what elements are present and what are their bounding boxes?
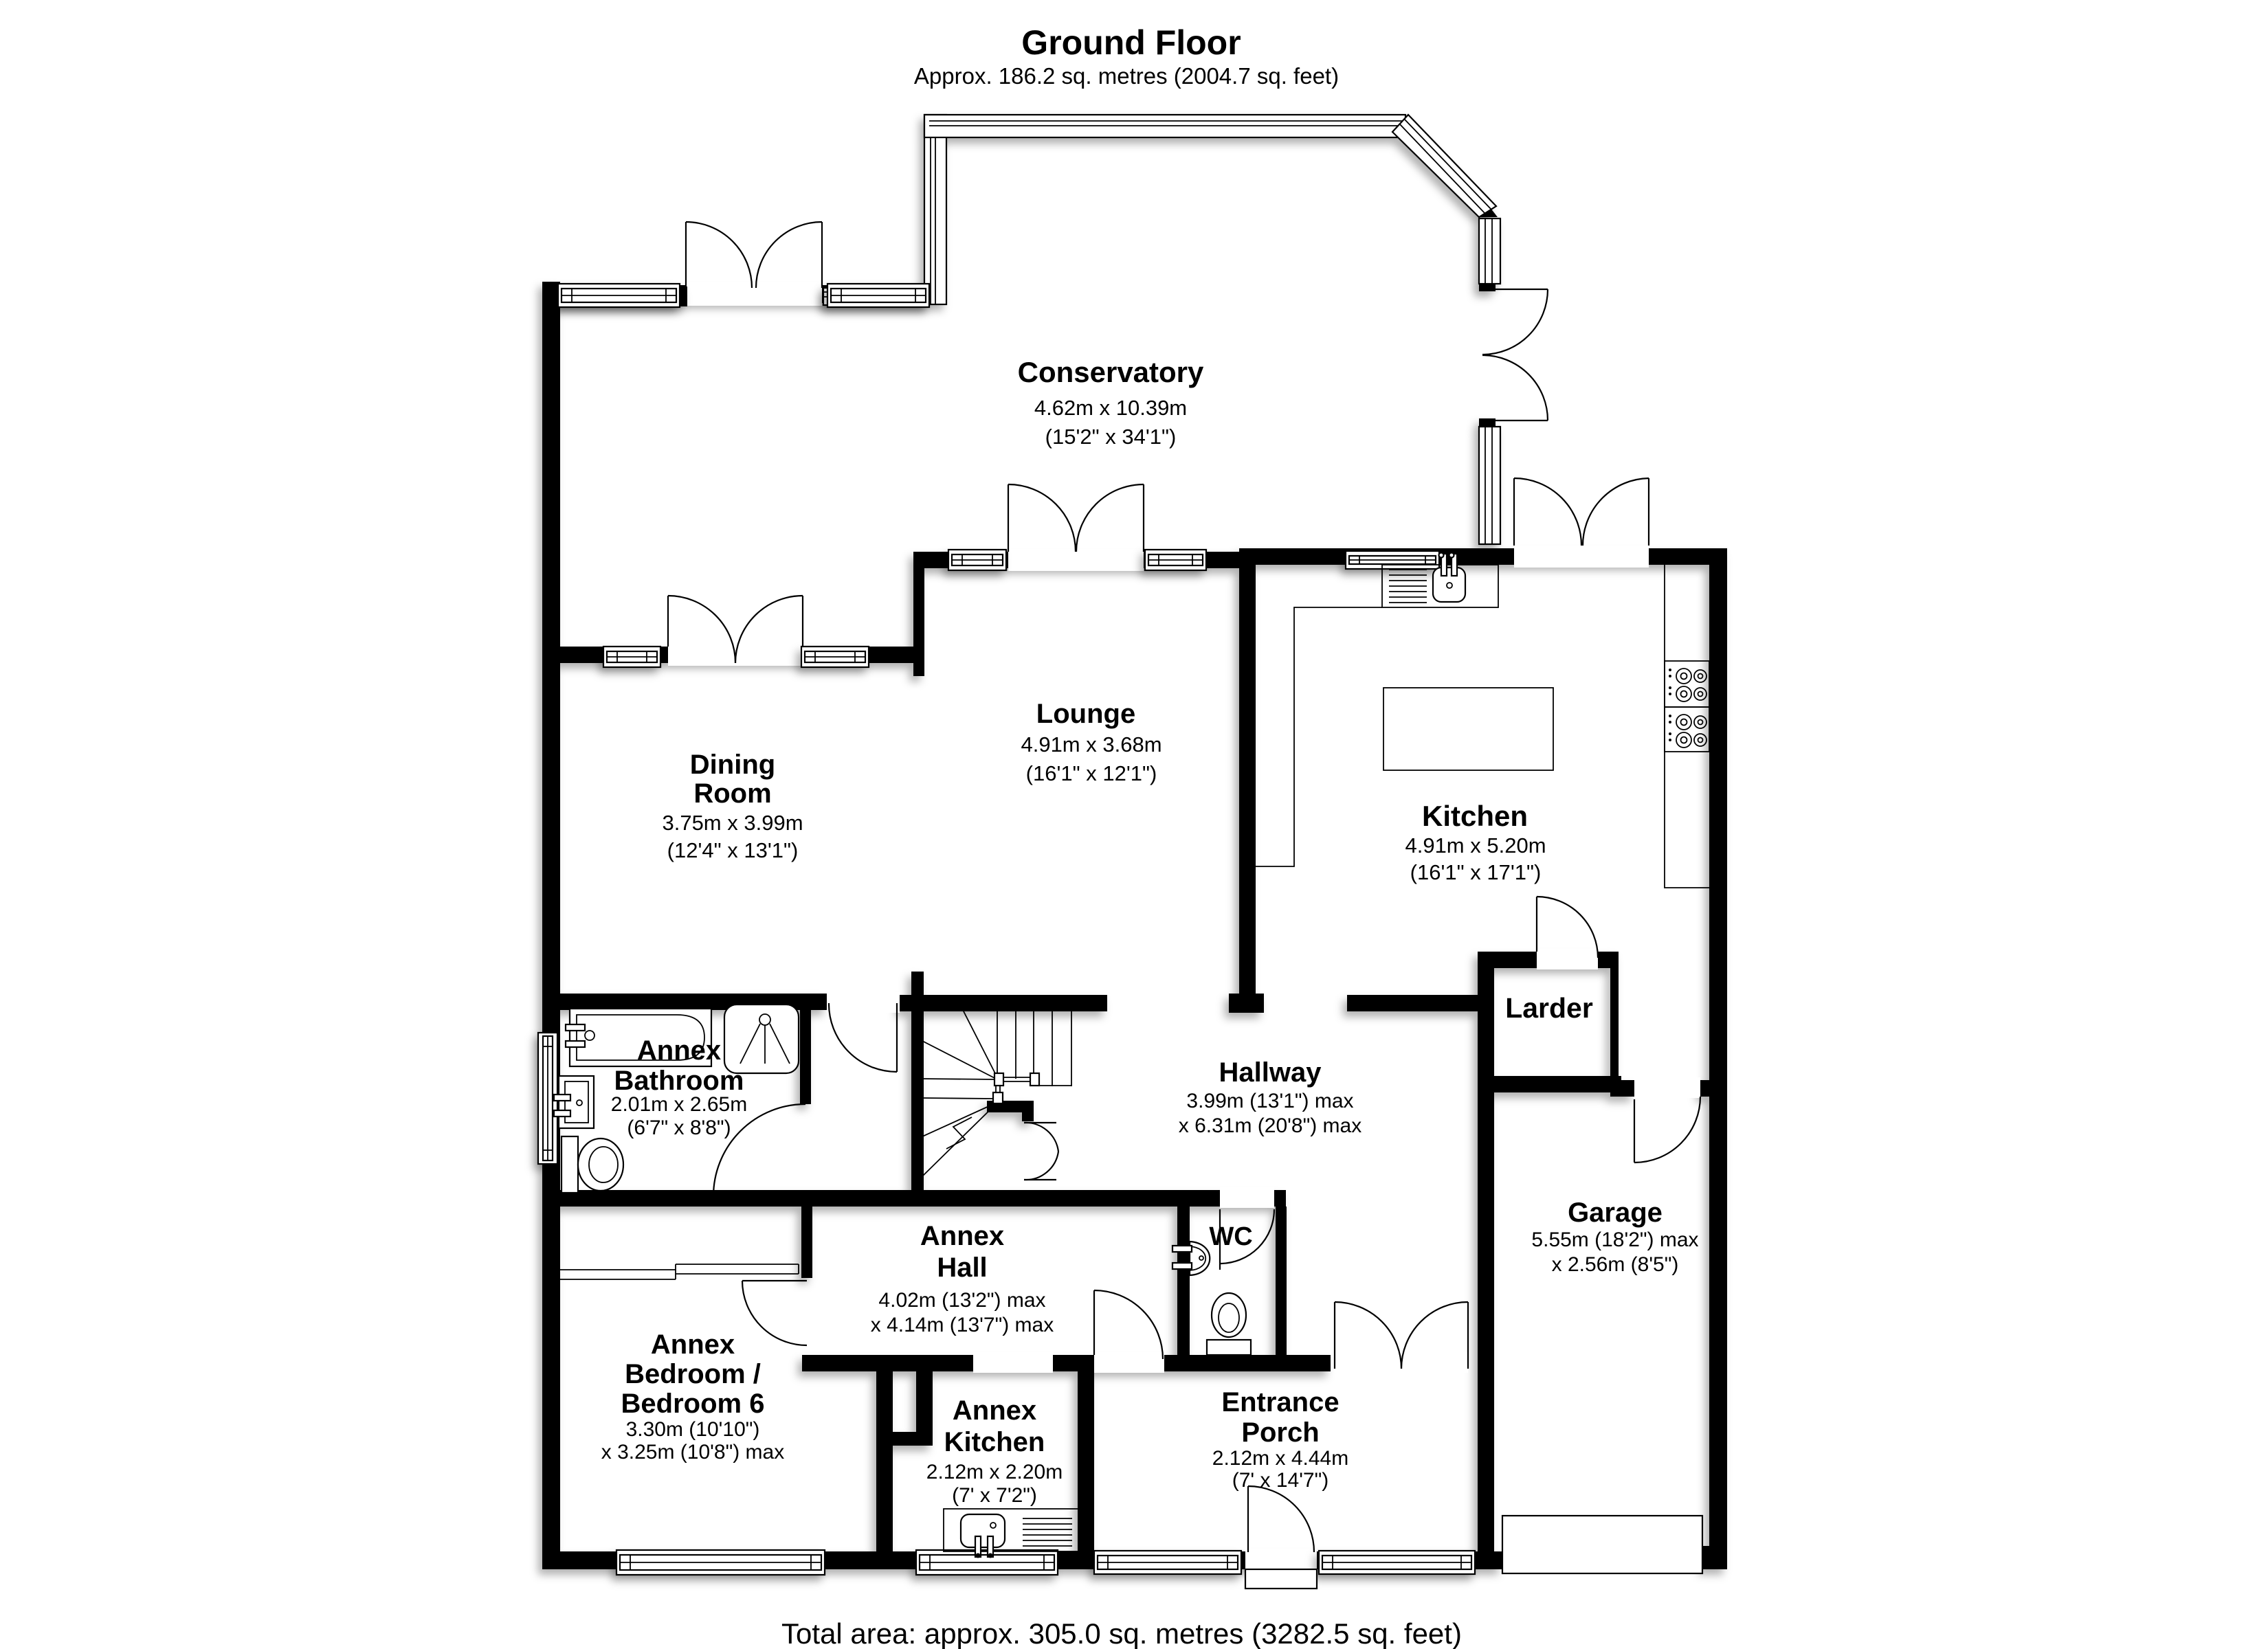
svg-text:Bedroom 6: Bedroom 6	[621, 1389, 765, 1419]
svg-text:5.55m (18'2") max: 5.55m (18'2") max	[1531, 1229, 1698, 1251]
svg-text:(7' x 7'2"): (7' x 7'2")	[952, 1484, 1037, 1507]
svg-text:(16'1" x 17'1"): (16'1" x 17'1")	[1410, 860, 1542, 884]
svg-text:Approx. 186.2 sq. metres (2004: Approx. 186.2 sq. metres (2004.7 sq. fee…	[914, 63, 1339, 89]
svg-text:(16'1" x 12'1"): (16'1" x 12'1")	[1026, 761, 1157, 785]
svg-text:Annex: Annex	[651, 1330, 735, 1360]
svg-text:Kitchen: Kitchen	[944, 1427, 1045, 1457]
svg-text:Garage: Garage	[1568, 1198, 1663, 1228]
svg-text:Total area: approx. 305.0 sq.: Total area: approx. 305.0 sq. metres (32…	[781, 1617, 1462, 1649]
svg-text:(15'2" x 34'1"): (15'2" x 34'1")	[1045, 425, 1177, 449]
svg-text:4.91m x 5.20m: 4.91m x 5.20m	[1405, 833, 1546, 857]
svg-text:2.01m x 2.65m: 2.01m x 2.65m	[611, 1093, 747, 1116]
svg-text:2.12m x 2.20m: 2.12m x 2.20m	[926, 1461, 1063, 1483]
svg-text:(7' x 14'7"): (7' x 14'7")	[1232, 1469, 1329, 1492]
svg-text:Hallway: Hallway	[1219, 1057, 1322, 1088]
svg-text:3.99m (13'1") max: 3.99m (13'1") max	[1186, 1090, 1353, 1112]
svg-text:Annex: Annex	[920, 1221, 1004, 1251]
svg-text:Lounge: Lounge	[1036, 699, 1135, 729]
svg-text:Annex: Annex	[953, 1395, 1036, 1426]
svg-text:4.02m (13'2") max: 4.02m (13'2") max	[878, 1289, 1045, 1312]
svg-text:Porch: Porch	[1241, 1417, 1319, 1448]
svg-text:x 2.56m (8'5"): x 2.56m (8'5")	[1552, 1253, 1679, 1276]
svg-text:4.62m x 10.39m: 4.62m x 10.39m	[1034, 396, 1187, 420]
svg-text:(12'4" x 13'1"): (12'4" x 13'1")	[667, 838, 799, 862]
svg-text:Conservatory: Conservatory	[1018, 356, 1204, 388]
svg-text:3.30m (10'10"): 3.30m (10'10")	[626, 1418, 760, 1441]
svg-text:Dining: Dining	[690, 750, 775, 780]
svg-text:Larder: Larder	[1505, 992, 1593, 1024]
svg-text:Annex: Annex	[637, 1035, 721, 1066]
svg-text:Ground Floor: Ground Floor	[1021, 23, 1241, 62]
svg-text:3.75m x 3.99m: 3.75m x 3.99m	[662, 811, 803, 835]
svg-text:x 6.31m (20'8") max: x 6.31m (20'8") max	[1179, 1114, 1361, 1137]
svg-text:2.12m x 4.44m: 2.12m x 4.44m	[1212, 1447, 1348, 1470]
svg-text:Kitchen: Kitchen	[1422, 800, 1528, 832]
svg-text:WC: WC	[1209, 1222, 1252, 1251]
svg-text:Hall: Hall	[937, 1253, 987, 1283]
svg-text:Bedroom /: Bedroom /	[625, 1359, 761, 1389]
svg-text:(6'7" x 8'8"): (6'7" x 8'8")	[627, 1117, 731, 1139]
svg-text:x 3.25m (10'8") max: x 3.25m (10'8") max	[601, 1441, 784, 1463]
svg-text:x 4.14m (13'7") max: x 4.14m (13'7") max	[871, 1314, 1054, 1336]
svg-text:Bathroom: Bathroom	[614, 1066, 744, 1096]
svg-text:Room: Room	[693, 778, 771, 809]
svg-text:4.91m x 3.68m: 4.91m x 3.68m	[1021, 732, 1161, 756]
svg-text:Entrance: Entrance	[1221, 1387, 1339, 1417]
